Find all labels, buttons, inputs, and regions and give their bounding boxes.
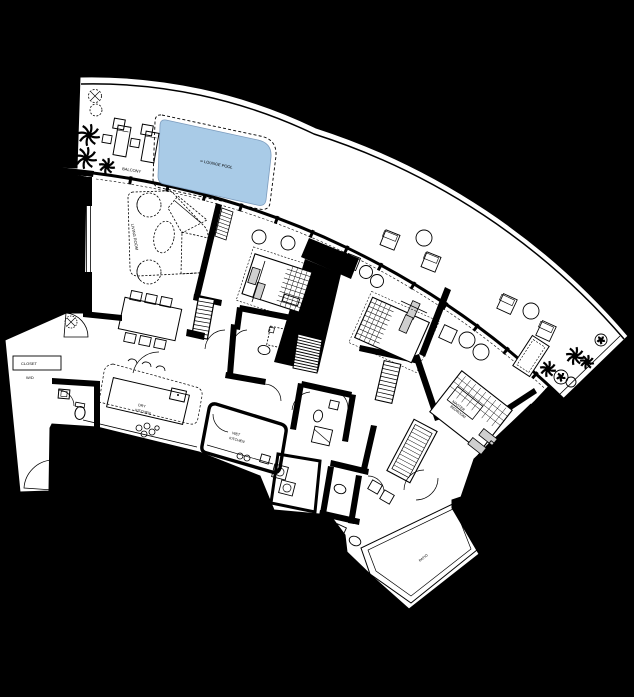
svg-text:W/D: W/D	[26, 375, 34, 380]
svg-text:CLOSET: CLOSET	[21, 361, 38, 366]
